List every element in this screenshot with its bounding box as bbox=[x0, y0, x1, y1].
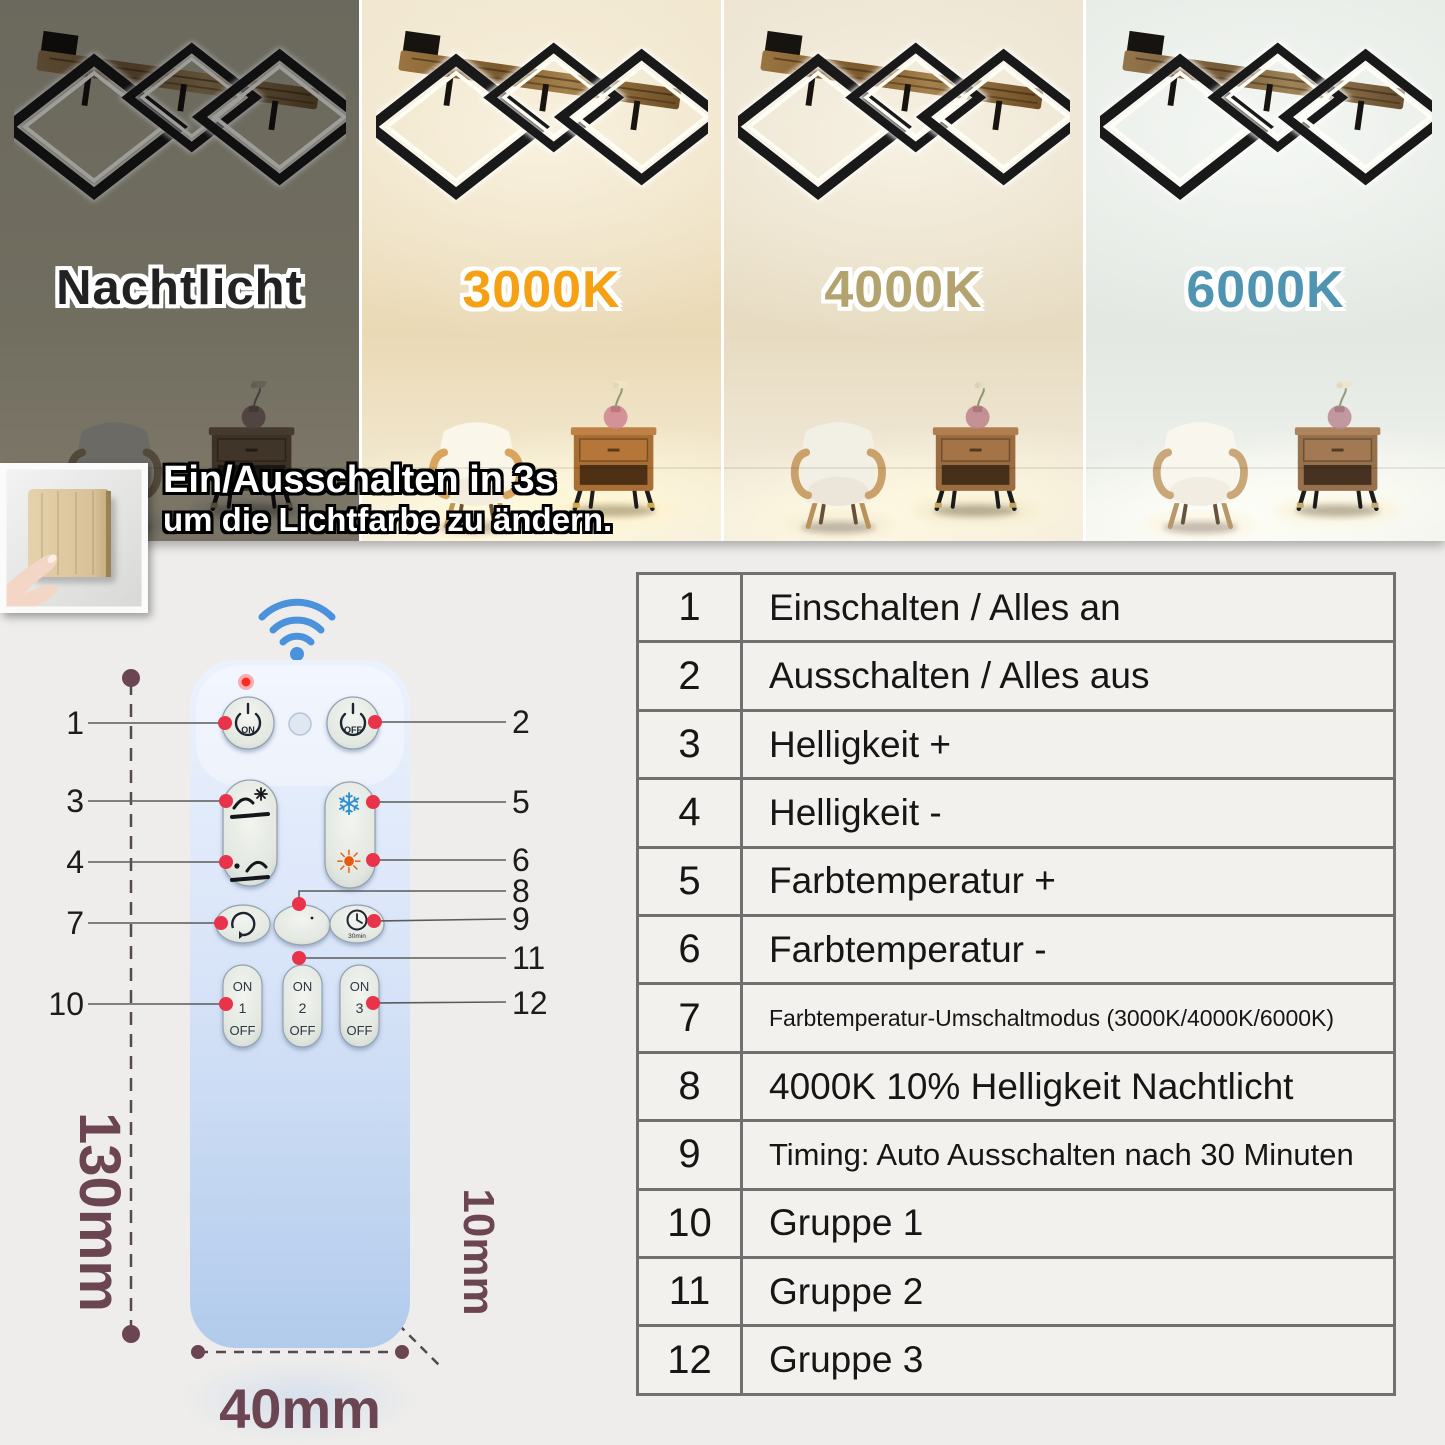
row-number: 10 bbox=[638, 1189, 742, 1257]
row-number: 12 bbox=[638, 1326, 742, 1395]
wifi-icon bbox=[262, 602, 332, 661]
row-description: Helligkeit + bbox=[742, 710, 1395, 778]
svg-text:OFF: OFF bbox=[230, 1023, 256, 1038]
table-row: 5Farbtemperatur + bbox=[638, 847, 1395, 915]
row-number: 5 bbox=[638, 847, 742, 915]
row-number: 2 bbox=[638, 642, 742, 710]
svg-text:30min: 30min bbox=[348, 933, 366, 940]
svg-text:2: 2 bbox=[299, 1000, 307, 1016]
ceiling-lamp-photo bbox=[14, 20, 346, 216]
room-scene bbox=[724, 381, 1083, 541]
row-description: Farbtemperatur - bbox=[742, 916, 1395, 984]
svg-text:9: 9 bbox=[512, 901, 530, 937]
width-dimension: 40mm bbox=[219, 1377, 381, 1440]
row-description: Ausschalten / Alles aus bbox=[742, 642, 1395, 710]
row-description: Gruppe 2 bbox=[742, 1258, 1395, 1326]
color-temp-label: 3000K bbox=[362, 260, 721, 320]
svg-text:10: 10 bbox=[48, 986, 84, 1022]
switch-hint-banner: Ein/Ausschalten in 3s um die Lichtfarbe … bbox=[163, 459, 612, 539]
svg-text:1: 1 bbox=[66, 705, 84, 741]
table-row: 1Einschalten / Alles an bbox=[638, 574, 1395, 642]
table-row: 9Timing: Auto Ausschalten nach 30 Minute… bbox=[638, 1121, 1395, 1189]
ir-sensor bbox=[289, 713, 311, 735]
row-number: 1 bbox=[638, 574, 742, 642]
svg-text:ON: ON bbox=[233, 979, 253, 994]
table-row: 11Gruppe 2 bbox=[638, 1258, 1395, 1326]
row-description: Timing: Auto Ausschalten nach 30 Minuten bbox=[742, 1121, 1395, 1189]
panel-4000k: 4000K bbox=[724, 0, 1086, 541]
led-indicator bbox=[242, 678, 251, 687]
table-row: 7Farbtemperatur-Umschaltmodus (3000K/400… bbox=[638, 984, 1395, 1052]
function-table: 1Einschalten / Alles an 2Ausschalten / A… bbox=[636, 572, 1396, 1396]
banner-line1: Ein/Ausschalten in 3s bbox=[163, 459, 612, 502]
svg-text:OFF: OFF bbox=[347, 1023, 373, 1038]
row-number: 3 bbox=[638, 710, 742, 778]
thickness-dimension: 10mm bbox=[454, 1188, 503, 1315]
ceiling-lamp-photo bbox=[376, 20, 708, 216]
wall-switch-photo bbox=[0, 463, 148, 613]
svg-text:7: 7 bbox=[66, 905, 84, 941]
row-number: 11 bbox=[638, 1258, 742, 1326]
table-row: 10Gruppe 1 bbox=[638, 1189, 1395, 1257]
table-row: 4Helligkeit - bbox=[638, 779, 1395, 847]
banner-line2: um die Lichtfarbe zu ändern. bbox=[163, 502, 612, 539]
svg-text:5: 5 bbox=[512, 784, 530, 820]
svg-text:3: 3 bbox=[66, 783, 84, 819]
row-description: Gruppe 3 bbox=[742, 1326, 1395, 1395]
row-description: 4000K 10% Helligkeit Nachtlicht bbox=[742, 1052, 1395, 1120]
table-row: 2Ausschalten / Alles aus bbox=[638, 642, 1395, 710]
row-number: 7 bbox=[638, 984, 742, 1052]
svg-text:ON: ON bbox=[241, 725, 255, 735]
svg-text:ON: ON bbox=[350, 979, 370, 994]
row-number: 9 bbox=[638, 1121, 742, 1189]
sun-icon: ☀ bbox=[335, 843, 364, 881]
color-temp-label: Nachtlicht bbox=[0, 260, 359, 316]
svg-text:OFF: OFF bbox=[290, 1023, 316, 1038]
row-description: Einschalten / Alles an bbox=[742, 574, 1395, 642]
svg-text:4: 4 bbox=[66, 844, 84, 880]
group-2-button: ON 2 OFF bbox=[283, 965, 322, 1047]
color-temp-label: 6000K bbox=[1086, 260, 1445, 320]
color-temp-label: 4000K bbox=[724, 260, 1083, 320]
height-dimension: 130mm bbox=[67, 1112, 132, 1312]
row-description: Helligkeit - bbox=[742, 779, 1395, 847]
row-number: 8 bbox=[638, 1052, 742, 1120]
room-scene bbox=[1086, 381, 1445, 541]
row-number: 4 bbox=[638, 779, 742, 847]
table-row: 6Farbtemperatur - bbox=[638, 916, 1395, 984]
table-row: 12Gruppe 3 bbox=[638, 1326, 1395, 1395]
row-description: Farbtemperatur + bbox=[742, 847, 1395, 915]
night-light-button bbox=[274, 905, 330, 945]
svg-text:2: 2 bbox=[512, 704, 530, 740]
table-row: 3Helligkeit + bbox=[638, 710, 1395, 778]
brightness-button bbox=[223, 780, 277, 886]
remote-diagram: 130mm 40mm 10mm ON bbox=[0, 555, 560, 1445]
svg-text:12: 12 bbox=[512, 985, 548, 1021]
row-description: Gruppe 1 bbox=[742, 1189, 1395, 1257]
product-infographic: Nachtlicht 3000K 4000K 6000K bbox=[0, 0, 1445, 1445]
row-description: Farbtemperatur-Umschaltmodus (3000K/4000… bbox=[742, 984, 1395, 1052]
svg-text:OFF: OFF bbox=[344, 725, 362, 735]
ceiling-lamp-photo bbox=[738, 20, 1070, 216]
table-row: 84000K 10% Helligkeit Nachtlicht bbox=[638, 1052, 1395, 1120]
svg-text:ON: ON bbox=[293, 979, 313, 994]
svg-text:3: 3 bbox=[356, 1000, 364, 1016]
row-number: 6 bbox=[638, 916, 742, 984]
svg-text:1: 1 bbox=[239, 1000, 247, 1016]
snowflake-icon: ❄ bbox=[336, 787, 362, 823]
panel-6000k: 6000K bbox=[1086, 0, 1445, 541]
svg-text:11: 11 bbox=[512, 940, 545, 976]
ceiling-lamp-photo bbox=[1100, 20, 1432, 216]
